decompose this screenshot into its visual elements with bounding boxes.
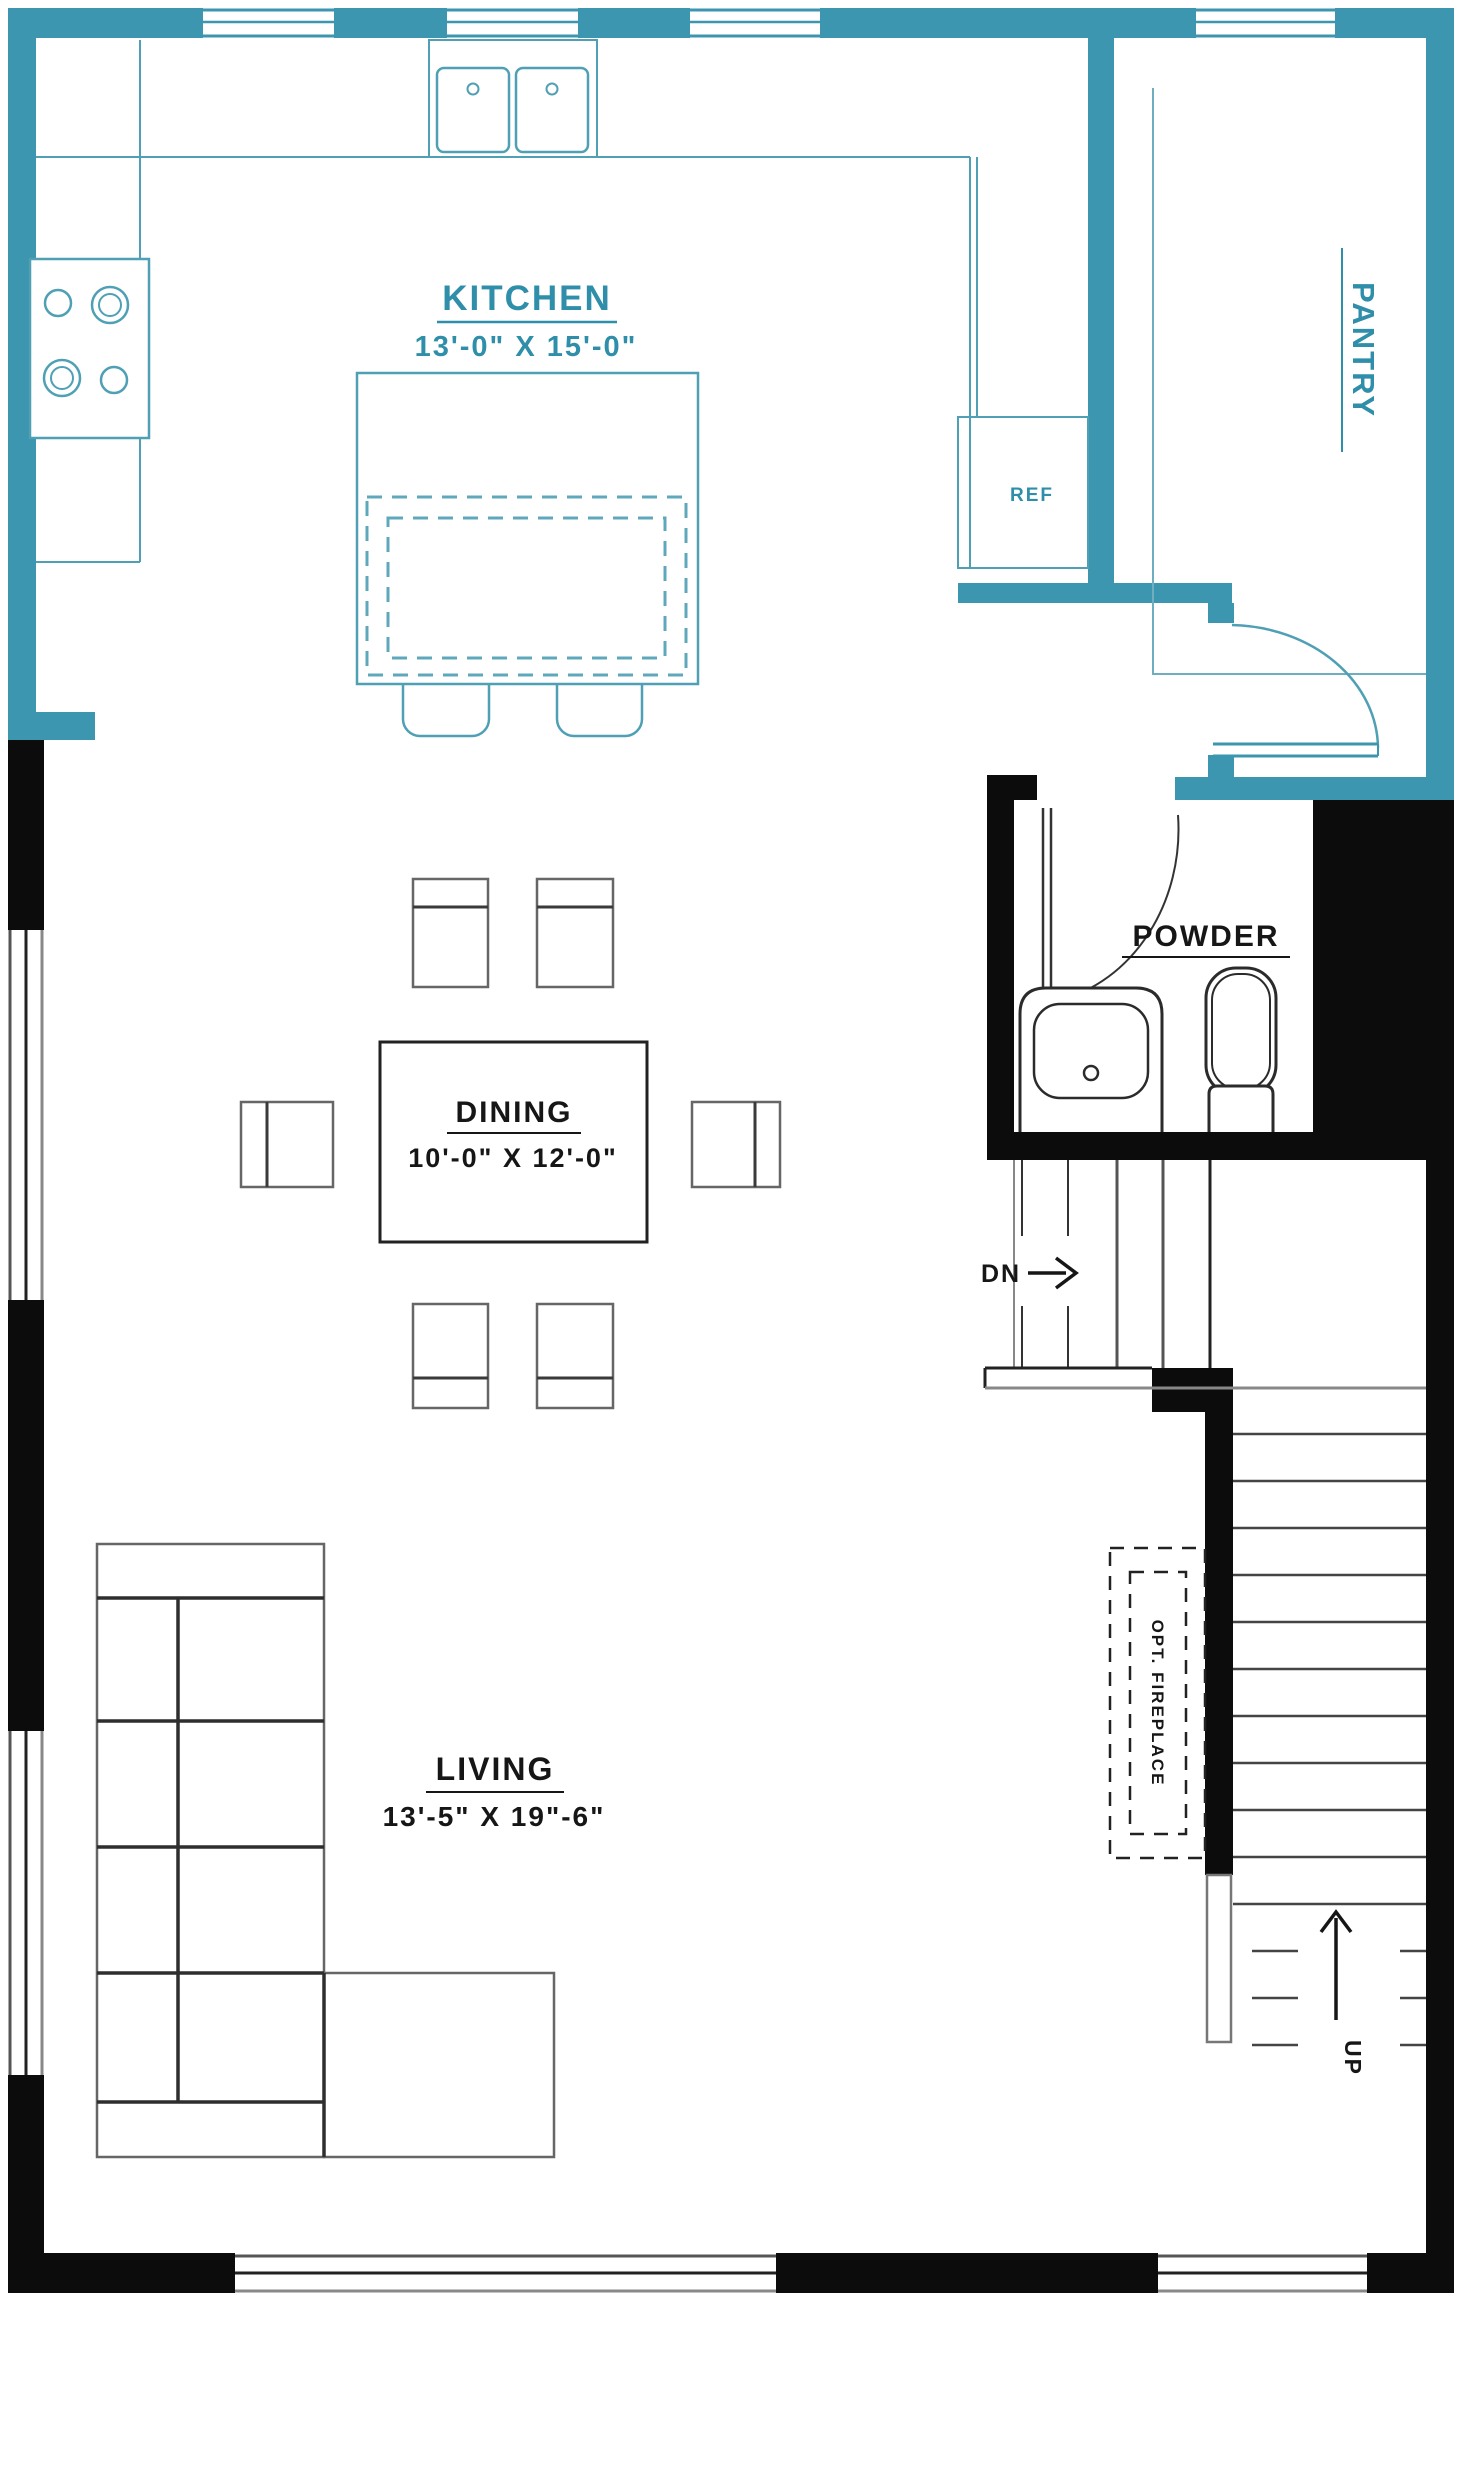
range-stove [30,259,149,438]
sink-vanity [1020,988,1162,1132]
living-dimensions: 13'-5" X 19"-6" [383,1801,606,1832]
kitchen-sink [429,40,597,157]
powder-label: POWDER [1133,920,1280,953]
dining-label: DINING [456,1096,573,1129]
refrigerator: REF [958,417,1088,568]
fireplace: OPT. FIREPLACE [1110,1548,1205,1858]
pantry-label: PANTRY [1346,282,1381,418]
stair-railing [1207,1875,1231,2042]
kitchen-island [357,373,698,736]
toilet [1206,968,1276,1132]
ref-label: REF [1010,485,1054,506]
dn-label: DN [981,1260,1021,1288]
dining-table [380,1042,647,1242]
dining-dimensions: 10'-0" X 12'-0" [408,1143,618,1173]
fireplace-label: OPT. FIREPLACE [1148,1620,1167,1787]
kitchen-label: KITCHEN [442,279,612,318]
kitchen-room: KITCHEN 13'-0" X 15'-0" [415,279,638,363]
floor-plan: REF KITCHEN 13'-0" X 15'-0" PANTRY [0,0,1462,2476]
living-label: LIVING [436,1751,555,1787]
kitchen-dimensions: 13'-0" X 15'-0" [415,331,638,363]
up-label: UP [1340,2040,1366,2076]
